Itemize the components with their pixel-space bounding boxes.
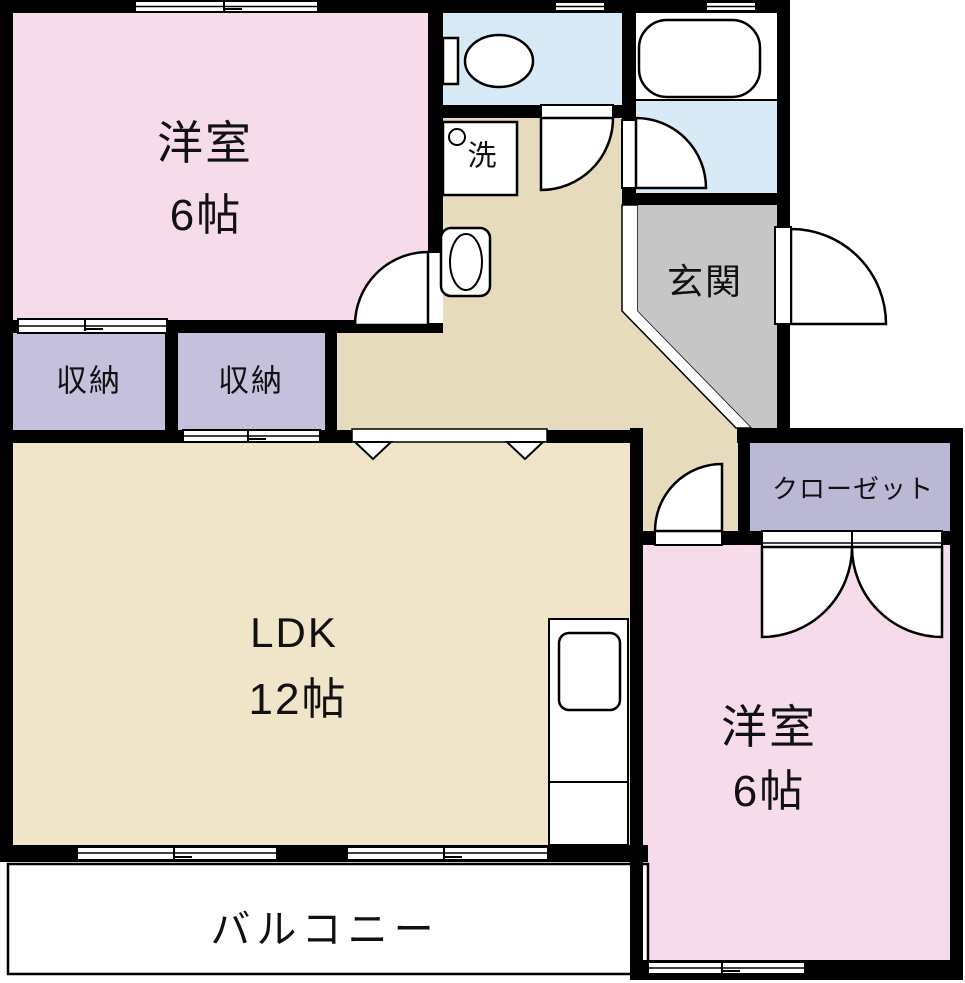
- floor-plan: 洋室 6帖 収納 収納 洗 玄関 クローゼット LDK 12帖 洋室 6帖 バル…: [0, 0, 965, 983]
- closet-label: クローゼット: [772, 476, 934, 502]
- balcony-label: バルコニー: [210, 910, 439, 950]
- ldk-size: 12帖: [249, 678, 348, 722]
- ldk-balcony-window-right: [347, 847, 548, 860]
- bedroom2-size: 6帖: [733, 770, 805, 814]
- bedroom1-size: 6帖: [170, 194, 242, 238]
- bedroom1-top-window: [135, 1, 318, 12]
- entrance-door-swing: [791, 229, 886, 324]
- bedroom2-label: 洋室: [721, 704, 817, 750]
- kitchen-counter: [549, 619, 628, 845]
- bathroom-top-window: [706, 2, 756, 11]
- toilet-door-opening: [541, 105, 613, 118]
- toilet-top-window: [555, 2, 605, 11]
- laundry-label: 洗: [467, 143, 498, 172]
- entrance-label: 玄関: [667, 264, 743, 300]
- storage1-sliding-door: [18, 319, 167, 333]
- entrance-door-leaf: [775, 227, 791, 324]
- storage1-label: 収納: [56, 366, 122, 397]
- storage2-label: 収納: [218, 366, 284, 397]
- storage2-sliding-door: [183, 430, 320, 442]
- kitchen-sink-icon: [559, 633, 620, 710]
- bedroom1-label: 洋室: [157, 120, 253, 166]
- ldk-label: LDK: [250, 612, 338, 654]
- bedroom2-door-opening: [655, 531, 722, 545]
- vanity-sink-icon: [441, 228, 490, 296]
- toilet-icon: [443, 35, 533, 87]
- washroom-door-opening: [622, 120, 636, 188]
- bedroom2-bottom-window: [648, 962, 805, 974]
- ldk-balcony-window-left: [77, 847, 277, 860]
- bathtub-icon: [639, 20, 760, 97]
